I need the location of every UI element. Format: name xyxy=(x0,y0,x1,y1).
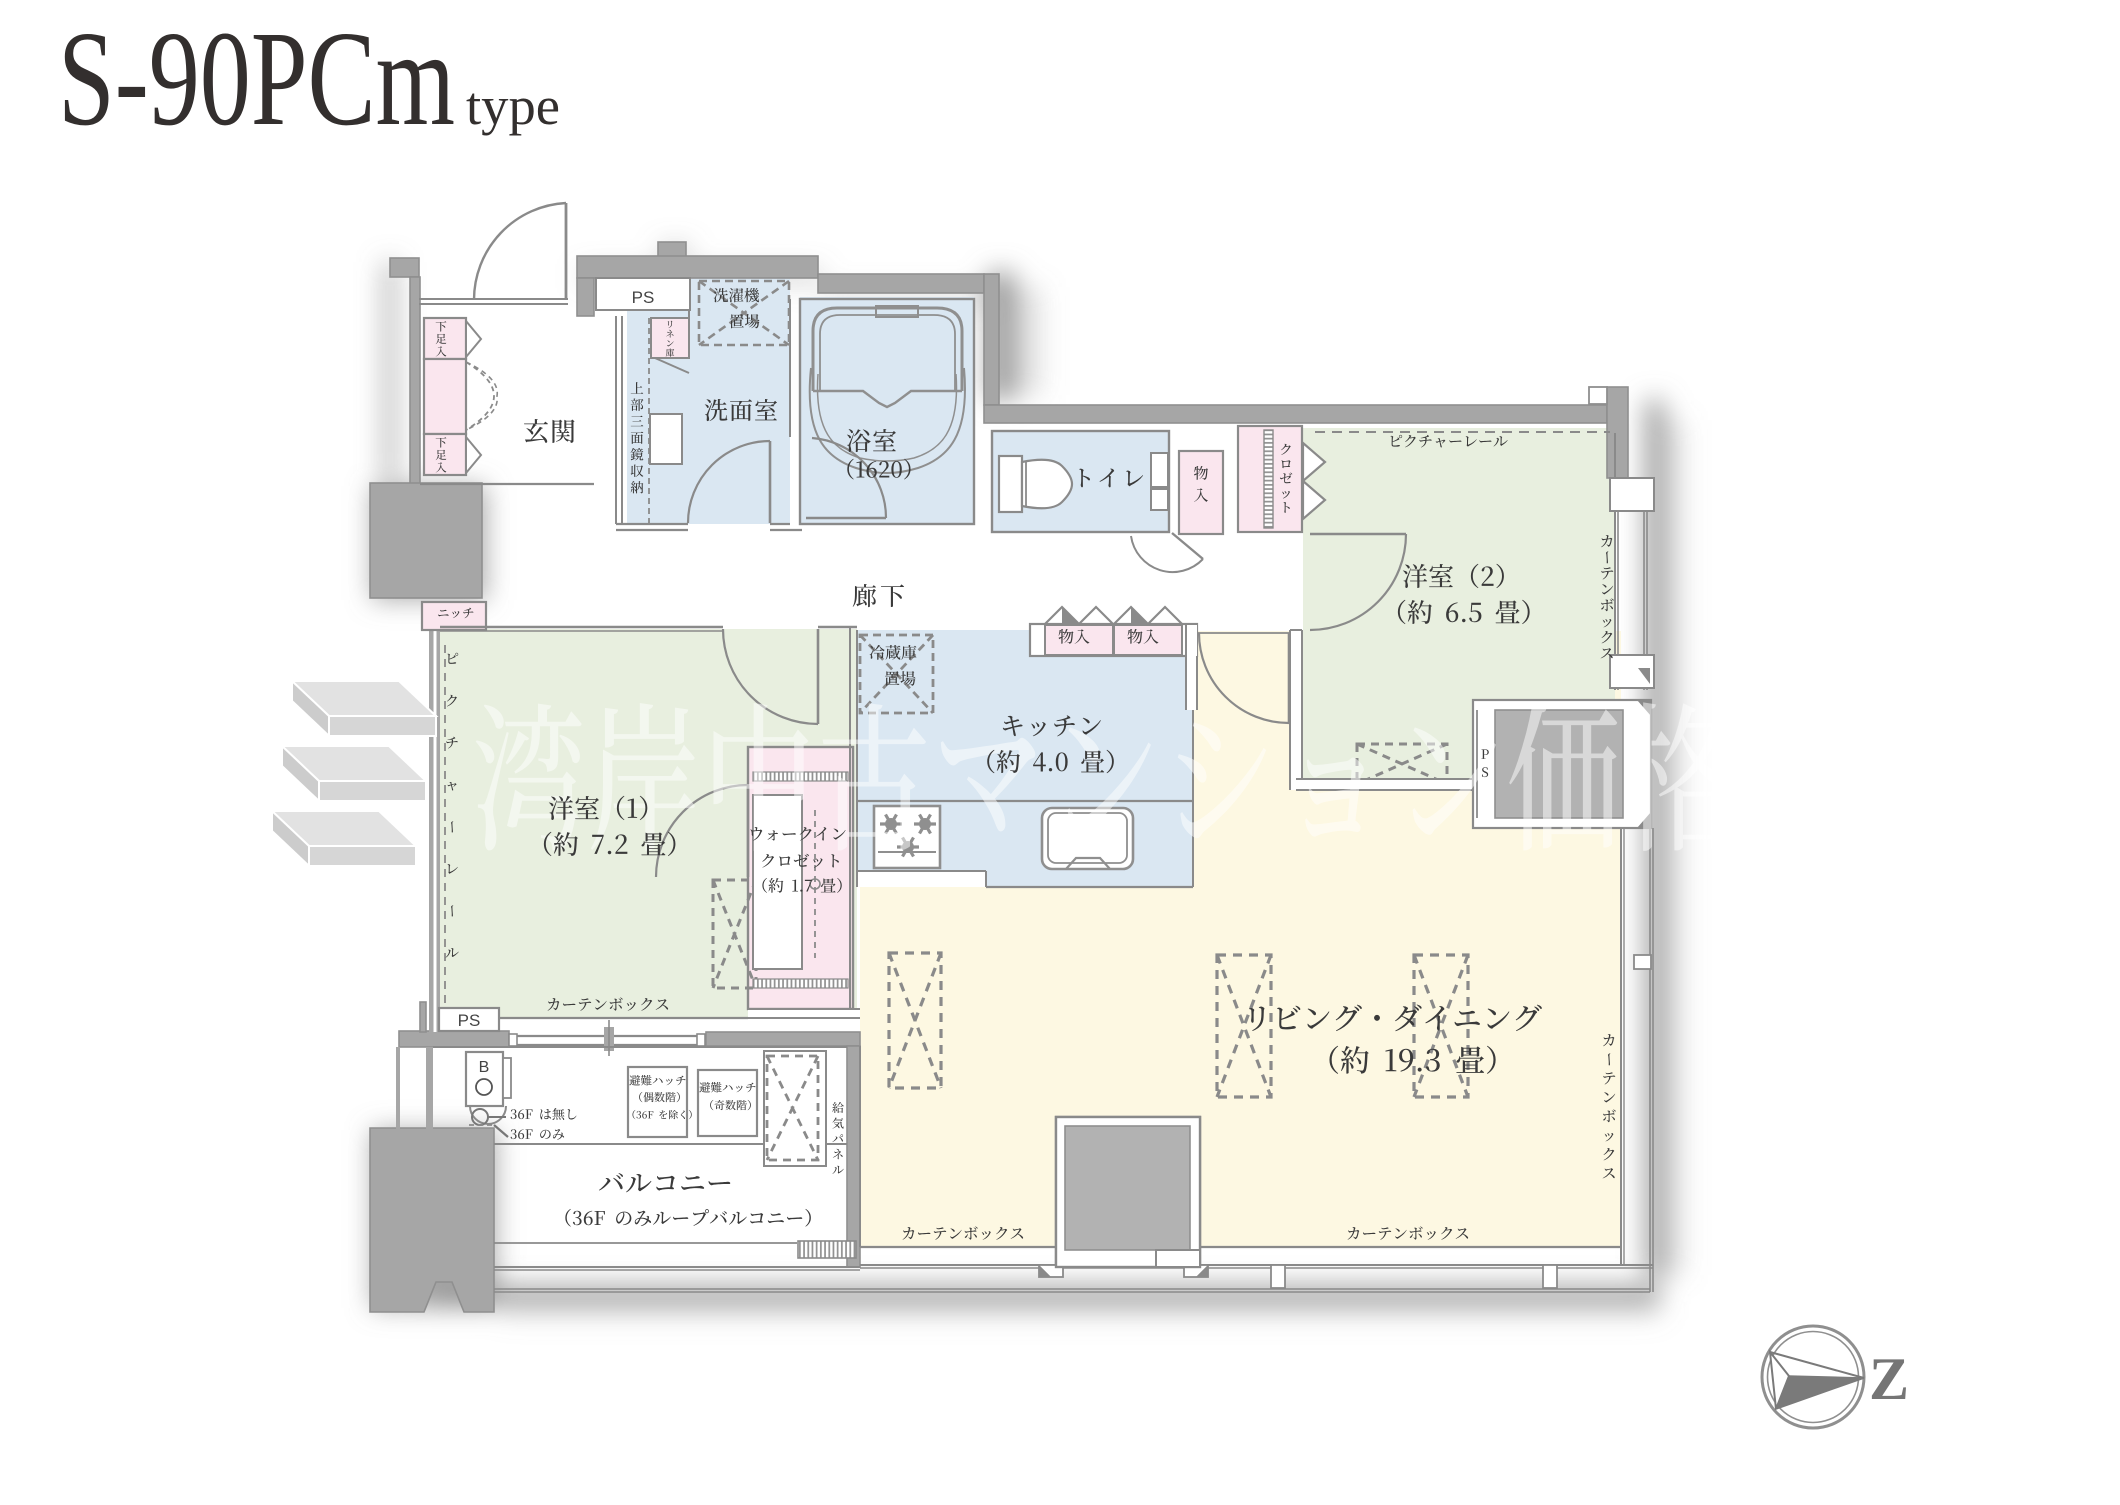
svg-text:S-90PCm: S-90PCm xyxy=(58,4,455,154)
svg-text:Z: Z xyxy=(1869,1346,1909,1412)
svg-text:PS: PS xyxy=(632,288,655,307)
svg-text:PS: PS xyxy=(458,1011,481,1030)
svg-text:B: B xyxy=(479,1059,490,1076)
svg-text:type: type xyxy=(466,76,560,136)
